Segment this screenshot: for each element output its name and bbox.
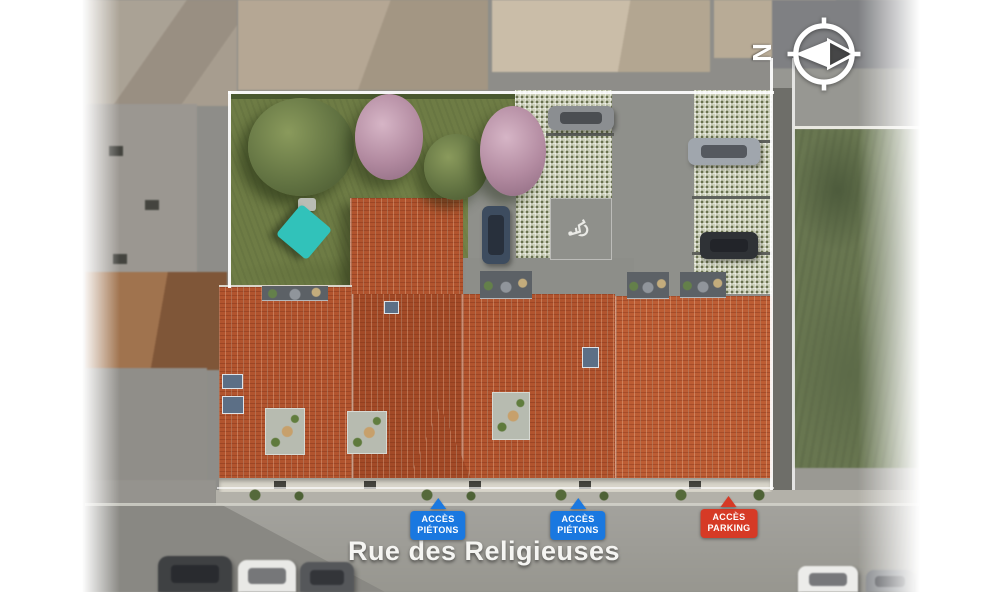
car bbox=[700, 232, 758, 259]
green-tree bbox=[248, 98, 354, 196]
marker-label: ACCÈSPARKING bbox=[701, 509, 758, 538]
car bbox=[482, 206, 510, 264]
courtyard-patio bbox=[492, 392, 530, 440]
roof-terrace bbox=[480, 271, 532, 299]
courtyard-patio bbox=[265, 408, 305, 455]
parking-space-divider bbox=[692, 196, 772, 199]
site-boundary bbox=[217, 487, 774, 489]
street-name-label: Rue des Religieuses bbox=[348, 536, 620, 567]
marker-line2: PARKING bbox=[708, 523, 751, 533]
marker-label: ACCÈSPIÉTONS bbox=[410, 511, 465, 540]
parking-space-divider bbox=[546, 133, 614, 136]
car bbox=[688, 138, 760, 165]
car bbox=[866, 570, 914, 592]
marker-line1: ACCÈS bbox=[561, 514, 594, 524]
main-roof-right bbox=[615, 296, 772, 481]
site-boundary bbox=[228, 91, 231, 288]
marker-label: ACCÈSPIÉTONS bbox=[550, 511, 605, 540]
green-field bbox=[794, 129, 940, 469]
courtyard-patio bbox=[347, 411, 387, 454]
existing-building-roof bbox=[85, 0, 237, 106]
boundary-wall bbox=[772, 88, 792, 490]
roof-terrace bbox=[262, 286, 328, 301]
marker-pointer-triangle bbox=[721, 496, 737, 507]
marker-line2: PIÉTONS bbox=[417, 525, 458, 535]
car bbox=[300, 562, 354, 592]
marker-pointer-triangle bbox=[430, 498, 446, 509]
marker-line1: ACCÈS bbox=[712, 512, 745, 522]
roof-terrace bbox=[627, 272, 669, 299]
compass-rose-icon bbox=[786, 16, 862, 92]
marker-line2: PIÉTONS bbox=[557, 525, 598, 535]
car bbox=[798, 566, 858, 592]
green-tree bbox=[424, 134, 488, 200]
access-pietons-marker-2: ACCÈSPIÉTONS bbox=[550, 498, 605, 540]
skylight bbox=[384, 301, 399, 314]
roof-terrace bbox=[680, 272, 726, 298]
site-boundary bbox=[228, 91, 774, 94]
flowering-tree bbox=[355, 94, 423, 180]
existing-building bbox=[85, 104, 197, 274]
existing-building-roof bbox=[238, 0, 488, 90]
existing-building-roof bbox=[85, 272, 227, 370]
main-roof-mid bbox=[462, 294, 615, 481]
garden-building-roof bbox=[350, 198, 463, 296]
skylight bbox=[582, 347, 599, 368]
site-boundary bbox=[770, 58, 773, 490]
marker-pointer-triangle bbox=[570, 498, 586, 509]
skylight bbox=[222, 374, 243, 389]
skylight bbox=[222, 396, 244, 414]
curb-line bbox=[85, 503, 940, 506]
aerial-site-plan: ♿ bbox=[0, 0, 1000, 592]
marker-line1: ACCÈS bbox=[421, 514, 454, 524]
car bbox=[548, 106, 614, 130]
existing-building bbox=[85, 368, 207, 482]
access-parking-marker: ACCÈSPARKING bbox=[701, 496, 758, 538]
site-boundary bbox=[792, 58, 795, 490]
field-boundary bbox=[794, 126, 940, 129]
car bbox=[158, 556, 232, 592]
existing-building-roof bbox=[492, 0, 710, 72]
car bbox=[238, 560, 296, 592]
north-letter: N bbox=[746, 43, 777, 62]
access-pietons-marker-1: ACCÈSPIÉTONS bbox=[410, 498, 465, 540]
sidewalk-bushes bbox=[219, 489, 772, 502]
flowering-tree bbox=[480, 106, 546, 196]
